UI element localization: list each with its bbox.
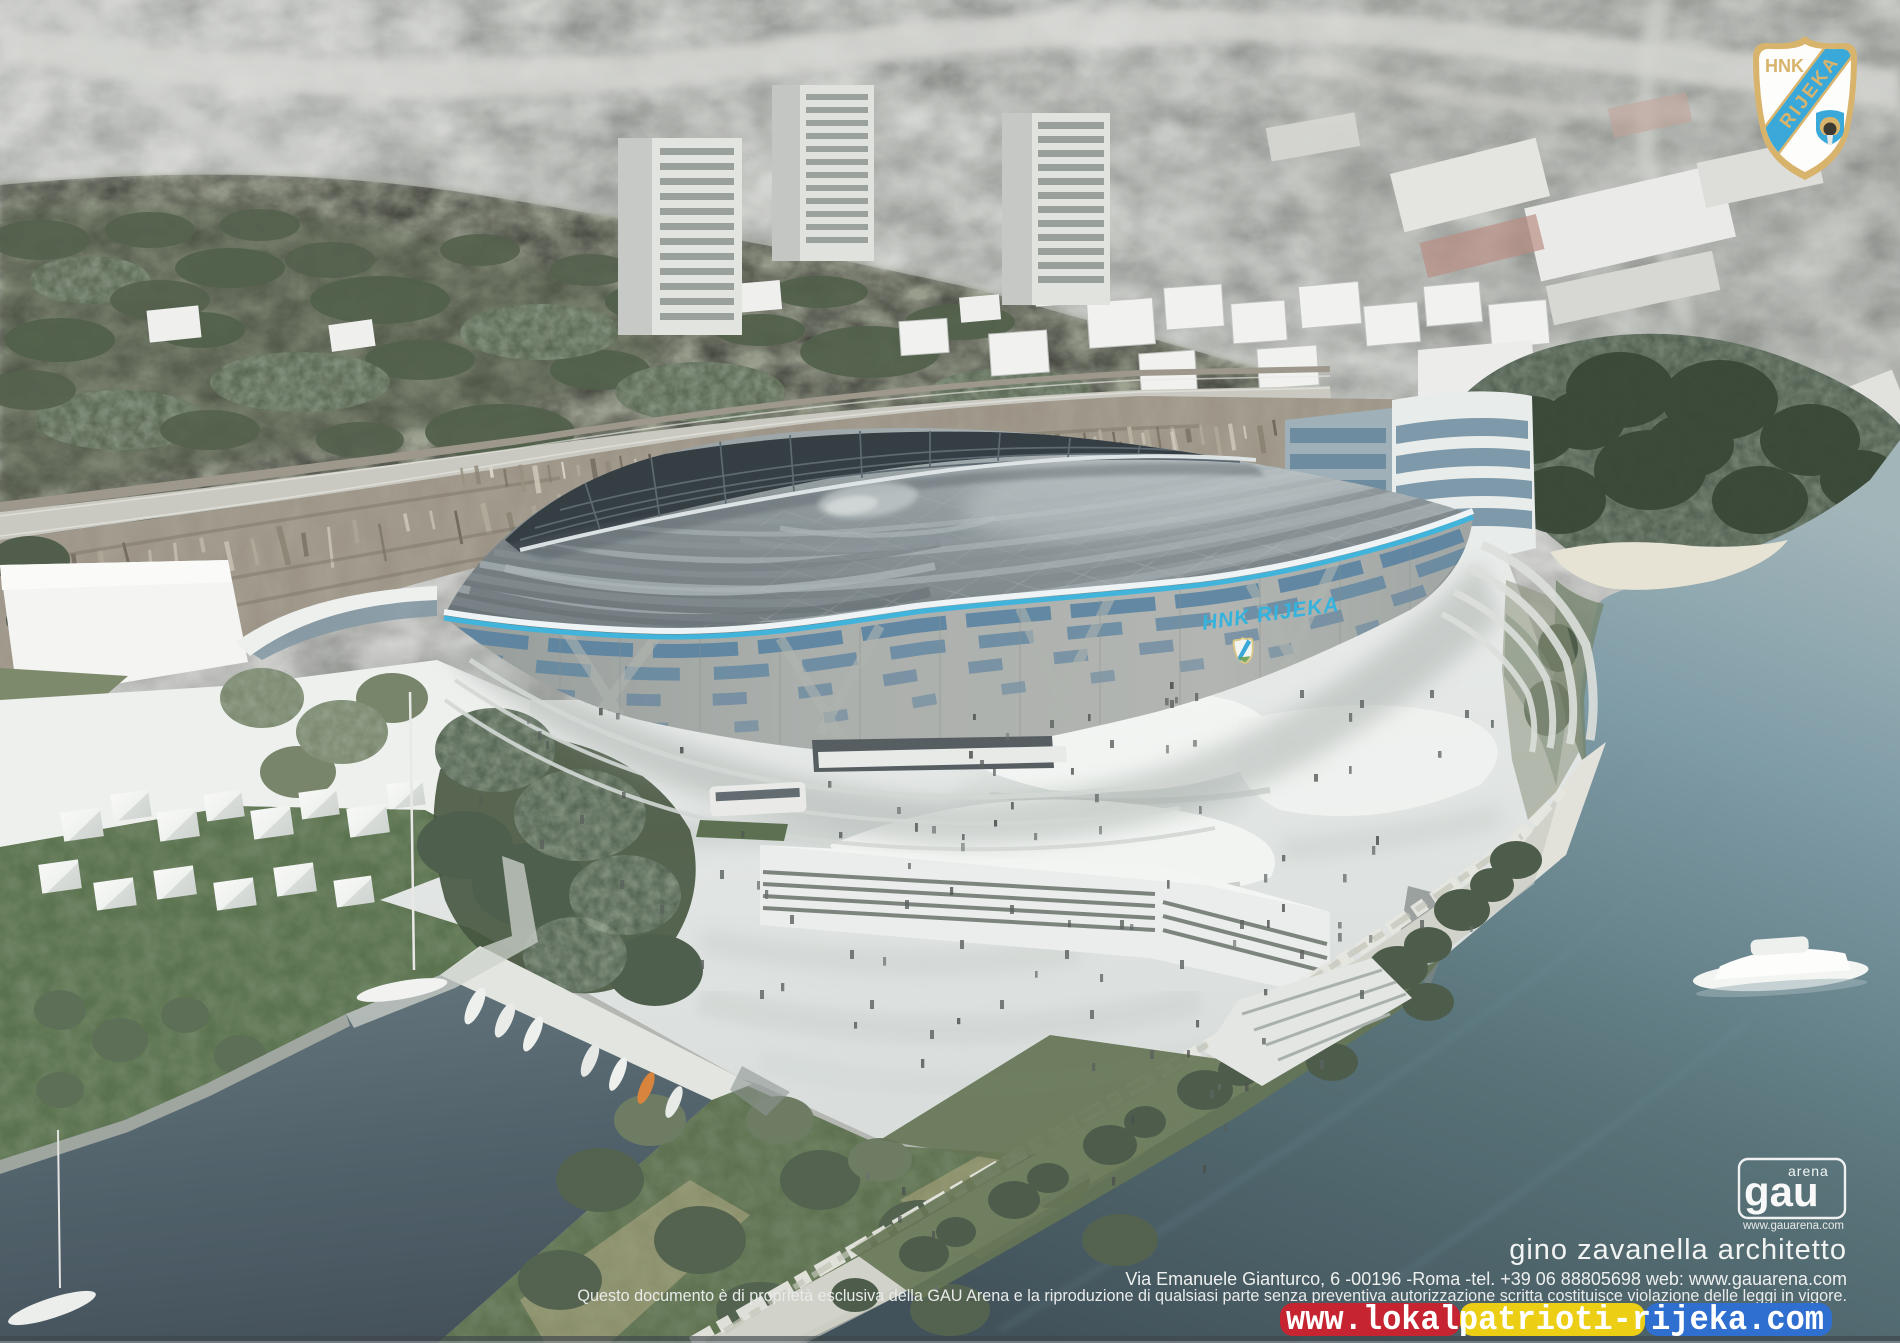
svg-text:HNK: HNK [1765,56,1804,76]
svg-text:Via Emanuele Gianturco, 6 -001: Via Emanuele Gianturco, 6 -00196 -Roma -… [1125,1269,1847,1289]
svg-text:gino zavanella architetto: gino zavanella architetto [1509,1234,1847,1266]
svg-text:gau: gau [1744,1168,1819,1215]
svg-text:www.lokalpatrioti-rijeka.com: www.lokalpatrioti-rijeka.com [1286,1302,1824,1340]
svg-text:www.gauarena.com: www.gauarena.com [1742,1220,1844,1232]
